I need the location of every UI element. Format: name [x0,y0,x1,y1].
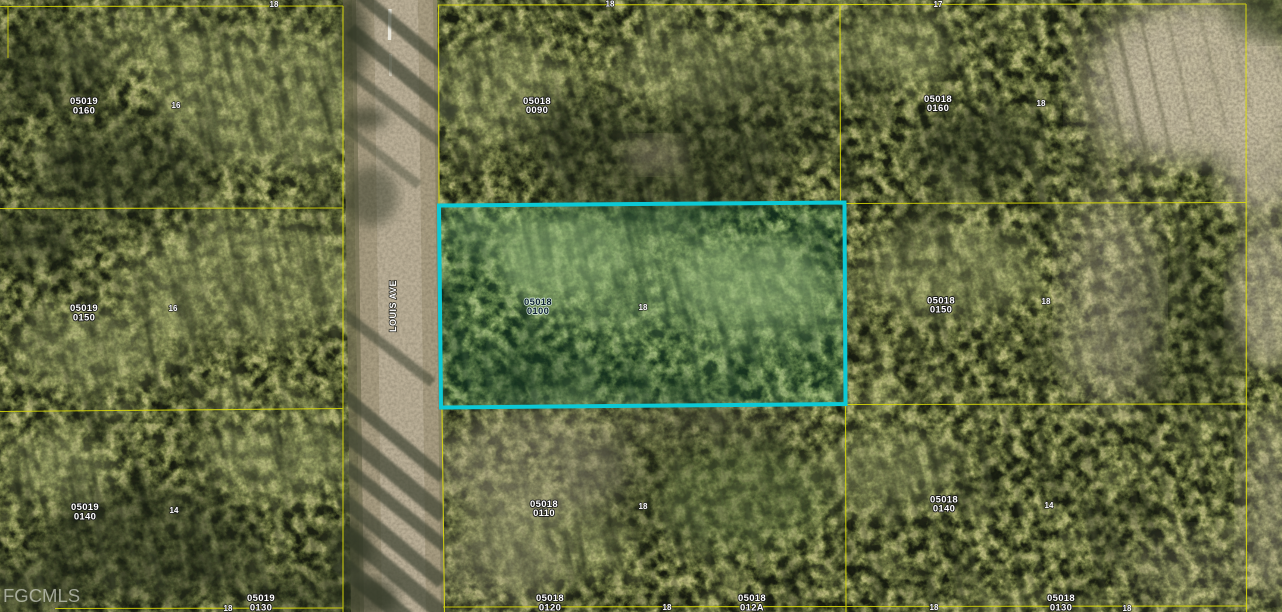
svg-text:18: 18 [1037,99,1046,108]
svg-text:17: 17 [934,0,943,9]
svg-text:14: 14 [170,506,179,515]
svg-text:18: 18 [639,303,648,312]
svg-text:0110: 0110 [533,508,555,519]
svg-text:14: 14 [1045,501,1054,510]
svg-text:FGCMLS: FGCMLS [3,585,80,606]
svg-text:18: 18 [663,603,672,612]
svg-text:0130: 0130 [1050,603,1072,612]
svg-text:0100: 0100 [527,306,549,317]
svg-text:0090: 0090 [526,105,548,116]
svg-text:18: 18 [606,0,615,9]
svg-text:0140: 0140 [933,504,955,515]
svg-text:18: 18 [1042,297,1051,306]
svg-text:0150: 0150 [73,313,95,324]
svg-text:18: 18 [639,502,648,511]
svg-text:18: 18 [270,0,279,9]
svg-text:0150: 0150 [930,305,952,316]
svg-text:18: 18 [1123,604,1132,612]
svg-text:18: 18 [224,604,233,612]
svg-text:012A: 012A [740,603,764,612]
svg-text:0130: 0130 [250,603,272,612]
svg-text:16: 16 [172,101,181,110]
svg-text:0160: 0160 [927,103,949,114]
svg-text:0120: 0120 [539,603,561,612]
svg-text:LOUIS AVE: LOUIS AVE [388,280,398,332]
svg-text:0140: 0140 [74,512,96,523]
svg-text:16: 16 [169,304,178,313]
svg-text:18: 18 [930,603,939,612]
svg-text:0160: 0160 [73,106,95,117]
